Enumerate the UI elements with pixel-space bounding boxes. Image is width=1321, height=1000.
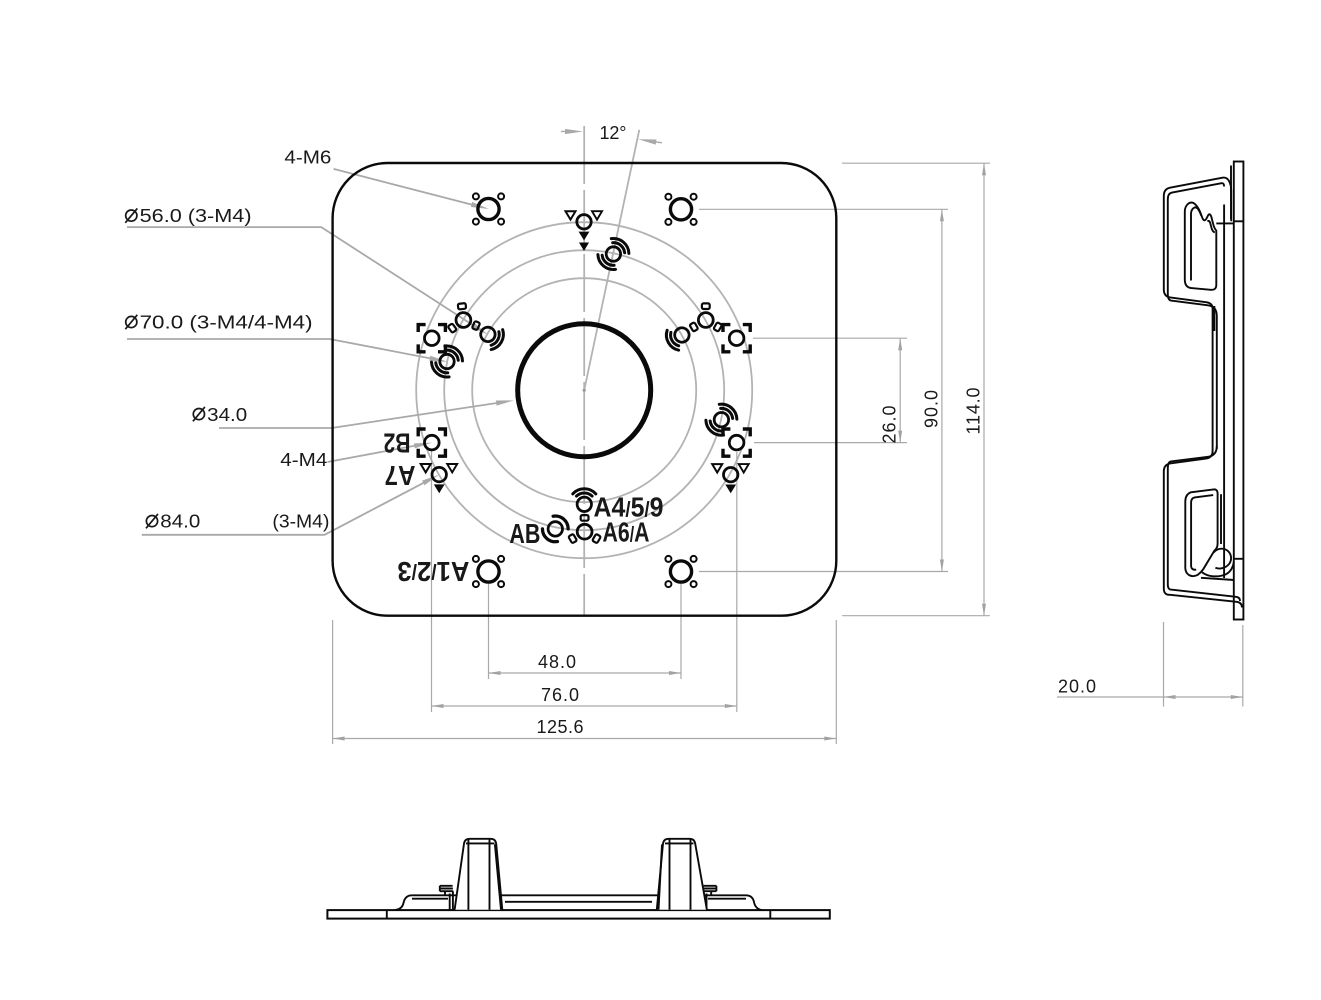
- svg-text:AB: AB: [509, 518, 540, 549]
- svg-text:20.0: 20.0: [1058, 677, 1096, 697]
- svg-text:A7: A7: [385, 460, 416, 491]
- svg-text:B2: B2: [384, 427, 411, 458]
- svg-text:4-M6: 4-M6: [284, 148, 331, 168]
- svg-text:A1/2/3: A1/2/3: [397, 556, 469, 587]
- svg-text:125.6: 125.6: [537, 717, 584, 737]
- svg-text:114.0: 114.0: [964, 388, 984, 435]
- svg-text:(3-M4): (3-M4): [272, 512, 329, 532]
- svg-text:12°: 12°: [600, 123, 627, 143]
- svg-text:56.0 (3-M4): 56.0 (3-M4): [140, 206, 252, 226]
- svg-text:48.0: 48.0: [538, 652, 576, 672]
- svg-text:A6/A: A6/A: [603, 517, 650, 548]
- svg-text:84.0: 84.0: [160, 512, 200, 532]
- svg-text:26.0: 26.0: [880, 406, 900, 444]
- svg-text:76.0: 76.0: [541, 685, 579, 705]
- svg-text:34.0: 34.0: [207, 405, 247, 425]
- svg-text:70.0 (3-M4/4-M4): 70.0 (3-M4/4-M4): [140, 313, 313, 333]
- svg-text:90.0: 90.0: [921, 390, 941, 428]
- svg-text:4-M4: 4-M4: [280, 450, 327, 470]
